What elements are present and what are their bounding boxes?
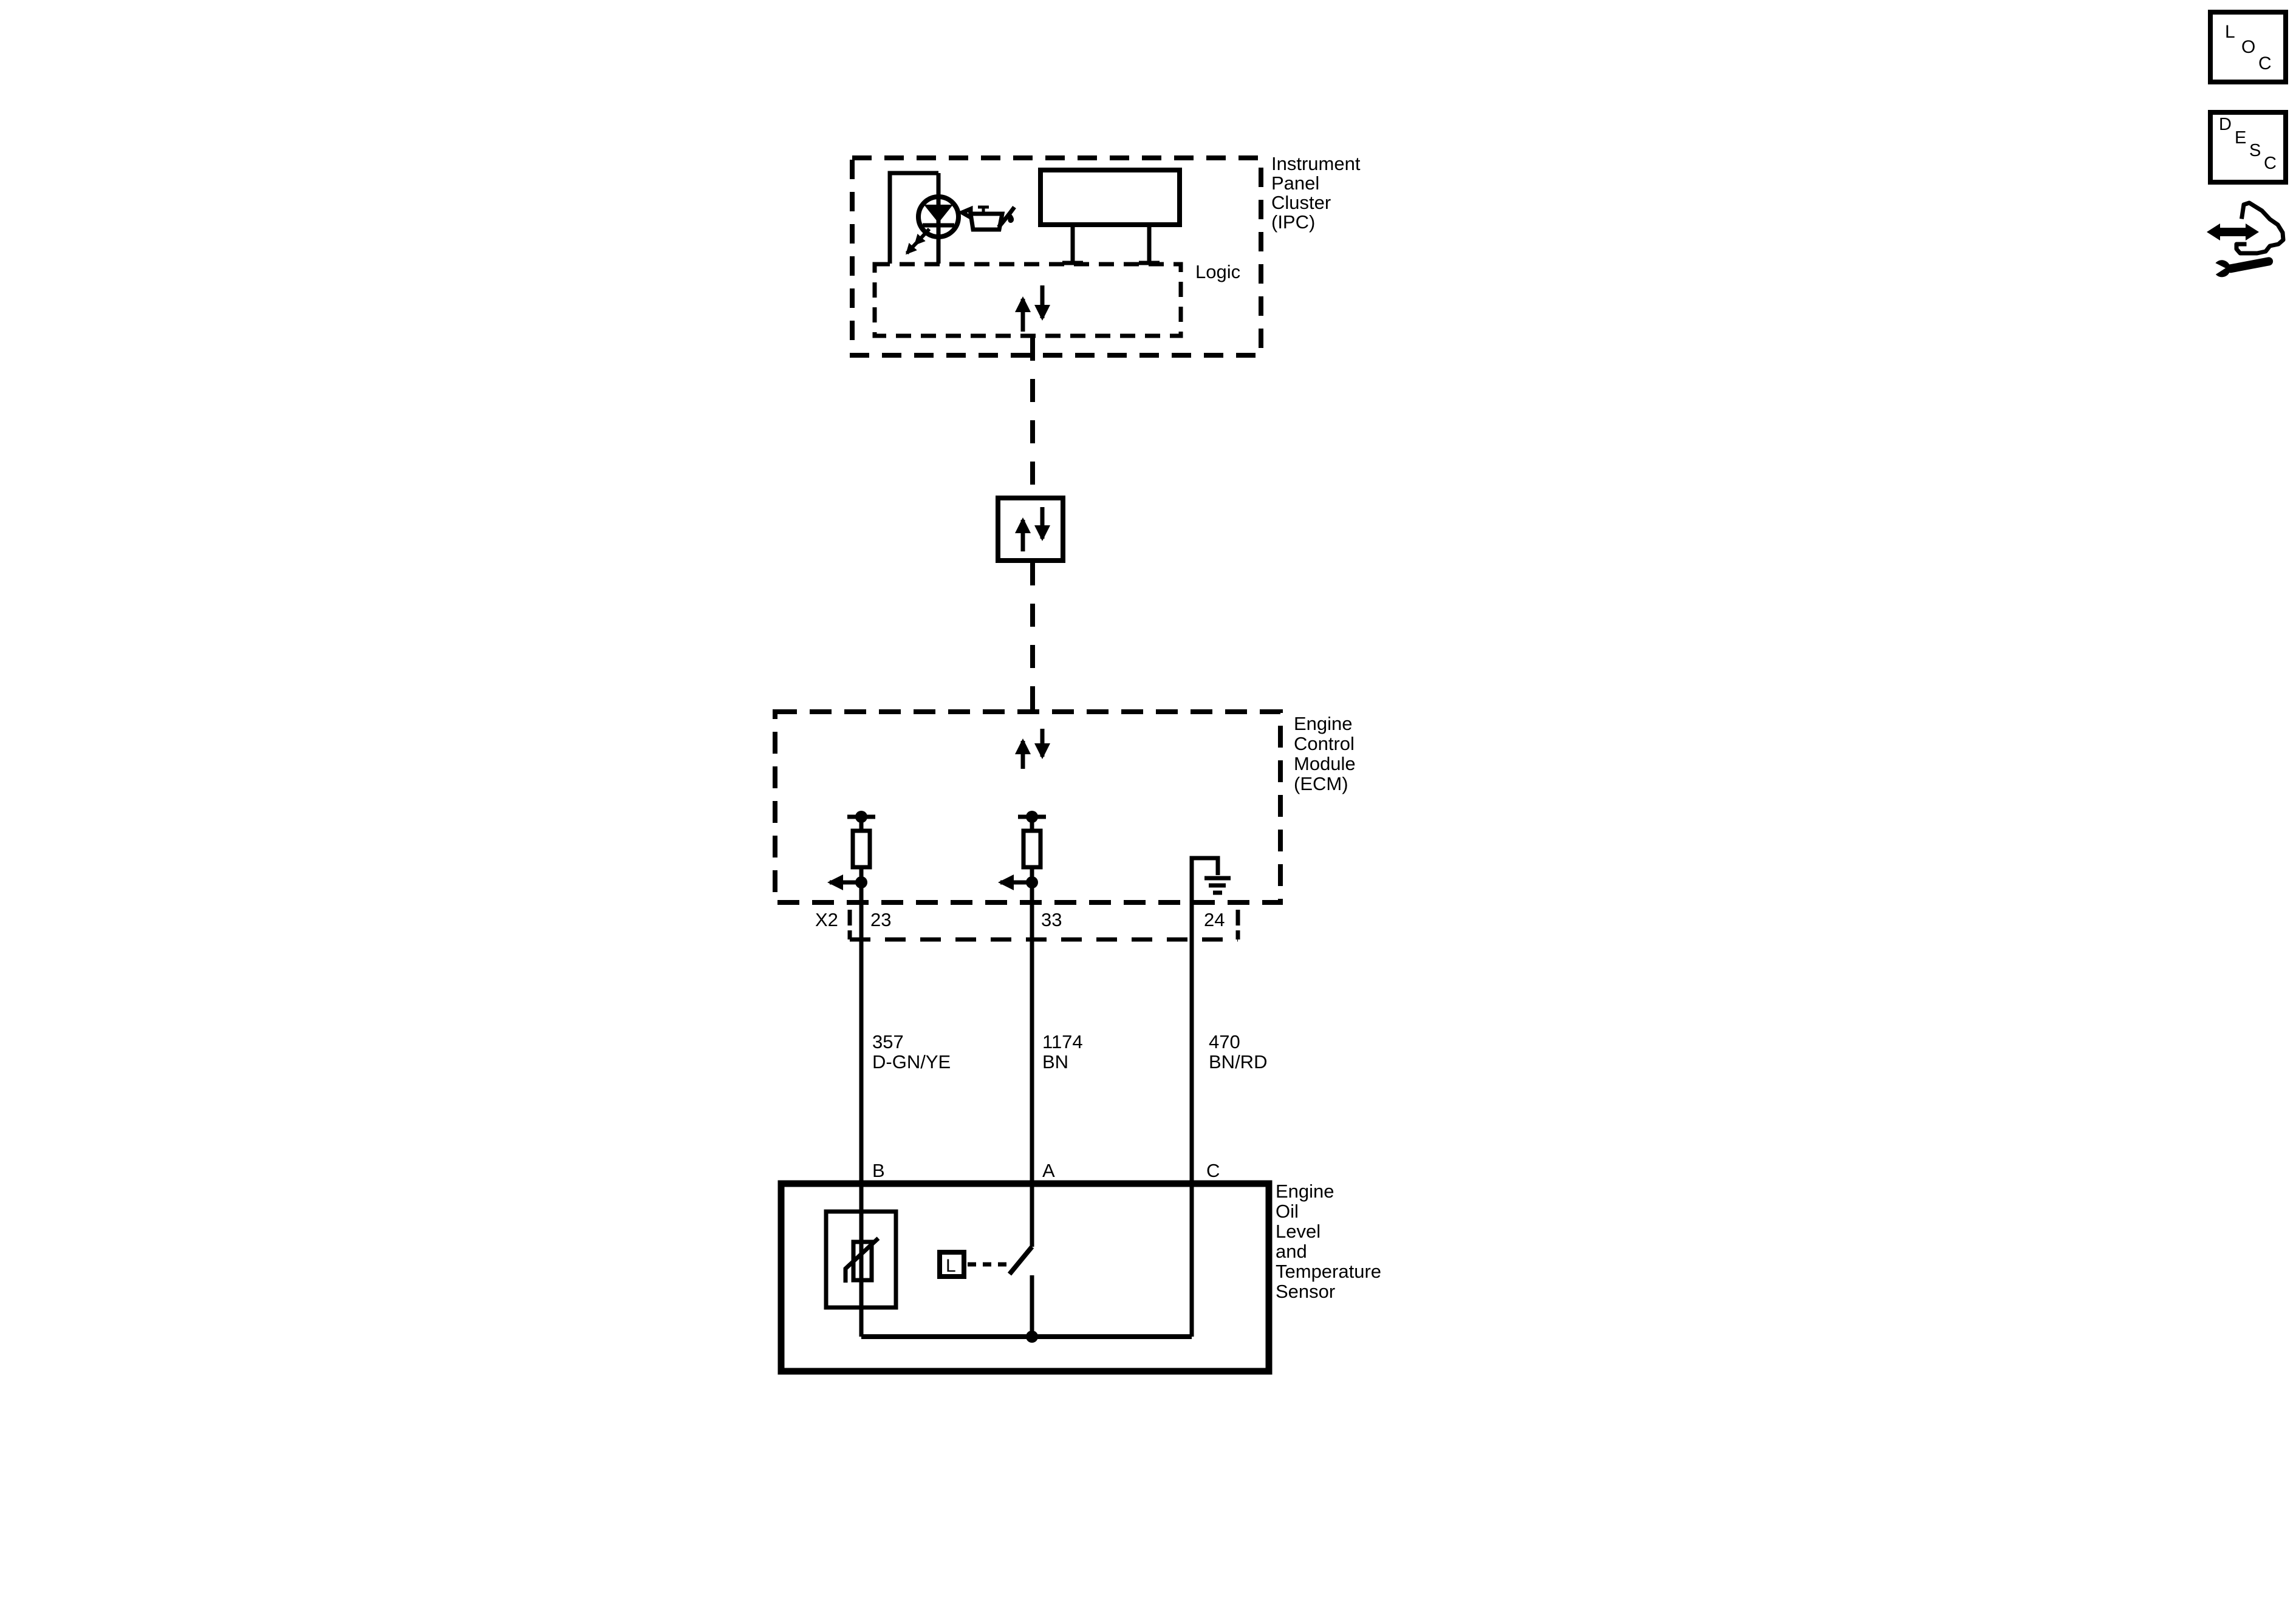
pullup-resistor-pin33 [1000,811,1046,888]
connector-view-icon[interactable] [2207,203,2283,279]
logic-label: Logic [1195,261,1240,282]
terminal-a-label: A [1042,1160,1055,1181]
logic-block: Logic [875,261,1240,336]
connector-x2: X2 23 33 24 [815,909,1238,939]
wire-470-label: 470 BN/RD [1209,1031,1267,1072]
sensor-title: Engine Oil Level and Temperature Sensor [1276,1181,1387,1302]
oil-level-temp-sensor: Engine Oil Level and Temperature Sensor … [781,1181,1387,1371]
gauge-box [1040,170,1180,225]
loc-icon[interactable]: L O C [2210,12,2286,82]
oil-can-body [971,214,1002,230]
wire-470: 470 BN/RD C [1192,858,1267,1337]
ipc-box [852,158,1261,355]
serial-data-link [998,338,1063,709]
resistor-body [1023,831,1040,867]
wire-1174-label: 1174 BN [1042,1031,1088,1072]
oil-indicator-led [890,173,958,264]
desc-icon[interactable]: D E S C [2210,112,2286,182]
resistor-body [853,831,870,867]
oil-can-icon [962,207,1014,230]
double-arrow-icon [2207,223,2259,240]
ipc-module: Instrument Panel Cluster (IPC) [852,153,1365,355]
wiring-diagram-canvas: Instrument Panel Cluster (IPC) [0,0,2296,1616]
pin-33-label: 33 [1041,909,1062,930]
led-diode-triangle [924,205,953,223]
connector-label: X2 [815,909,838,930]
ecm-title: Engine Control Module (ECM) [1294,713,1361,794]
serial-data-box [998,498,1063,561]
gauge-display-symbol [1040,170,1180,263]
led-branch-wire [890,173,938,264]
terminal-b-label: B [872,1160,885,1181]
switch-blade [1010,1247,1032,1274]
wrench-icon [2209,251,2270,279]
wire-357-label: 357 D-GN/YE [872,1031,951,1072]
pullup-resistor-pin23 [830,811,875,888]
desc-icon-letters: D E S C [2219,115,2277,173]
logic-box [875,264,1181,336]
led-light-arrow-2 [907,238,921,253]
ipc-title: Instrument Panel Cluster (IPC) [1271,153,1365,233]
level-switch-label: L [946,1256,956,1276]
level-switch: L [940,1247,1038,1343]
loc-icon-letters: L O C [2225,22,2272,73]
ground-symbol [1192,858,1231,902]
ecm-box [775,712,1280,902]
pin-24-label: 24 [1204,909,1225,930]
pin-23-label: 23 [870,909,891,930]
terminal-c-label: C [1206,1160,1220,1181]
